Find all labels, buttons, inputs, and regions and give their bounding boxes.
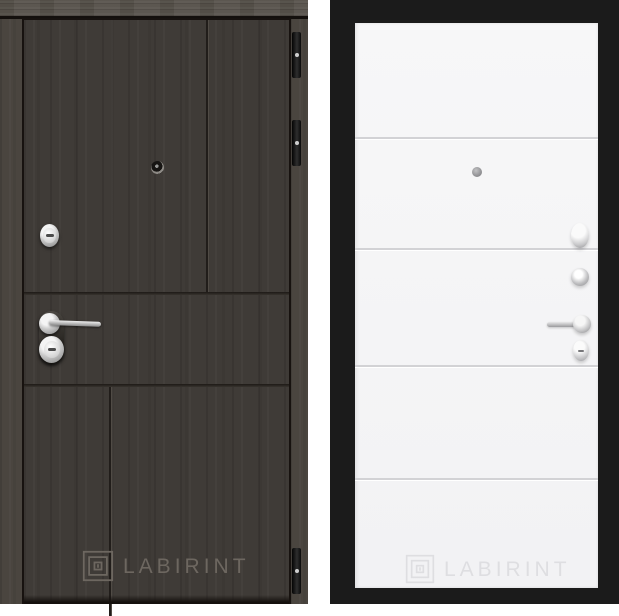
- round-key-cylinder: [39, 336, 64, 363]
- door-photo-dark: LABIRINT: [0, 0, 310, 604]
- panel-groove-2: [355, 248, 598, 250]
- door-hinge-middle: [292, 120, 301, 166]
- brand-logo-text: LABIRINT: [123, 556, 250, 577]
- brand-logo: LABIRINT: [82, 549, 250, 583]
- hinge-pin: [295, 569, 299, 573]
- door-photo-white: LABIRINT: [330, 0, 619, 604]
- peephole-icon: [472, 167, 482, 177]
- panel-groove-3: [355, 365, 598, 367]
- peephole-icon: [151, 161, 164, 174]
- panel-groove-4: [355, 478, 598, 480]
- oval-thumbturn: [571, 223, 589, 248]
- panel-groove-horizontal-1: [24, 292, 289, 295]
- labyrinth-logo-icon: [82, 550, 114, 582]
- keyhole-slot: [46, 234, 54, 237]
- keyhole-slot: [578, 350, 584, 352]
- door-leaf-white: LABIRINT: [355, 23, 598, 588]
- door-hinge-bottom: [292, 548, 301, 594]
- panel-groove-1: [355, 137, 598, 139]
- round-cylinder-lock: [40, 224, 59, 247]
- door-jamb-right: [290, 19, 308, 604]
- brand-logo-text: LABIRINT: [444, 559, 571, 580]
- door-bottom-shadow: [24, 595, 289, 604]
- panel-groove-vertical-top: [206, 20, 209, 292]
- door-jamb-left: [0, 19, 22, 604]
- hinge-pin: [295, 141, 299, 145]
- labyrinth-logo-icon: [405, 554, 435, 584]
- door-frame-header: [0, 0, 308, 16]
- handle-rose: [573, 315, 591, 333]
- brand-logo: LABIRINT: [405, 553, 571, 585]
- round-thumbturn: [571, 268, 589, 286]
- panel-groove-horizontal-2: [24, 384, 289, 387]
- keyhole-slot: [48, 348, 56, 351]
- door-leaf-dark: LABIRINT: [22, 18, 291, 604]
- hinge-pin: [295, 53, 299, 57]
- door-hinge-top: [292, 32, 301, 78]
- oval-key-cylinder: [573, 340, 589, 361]
